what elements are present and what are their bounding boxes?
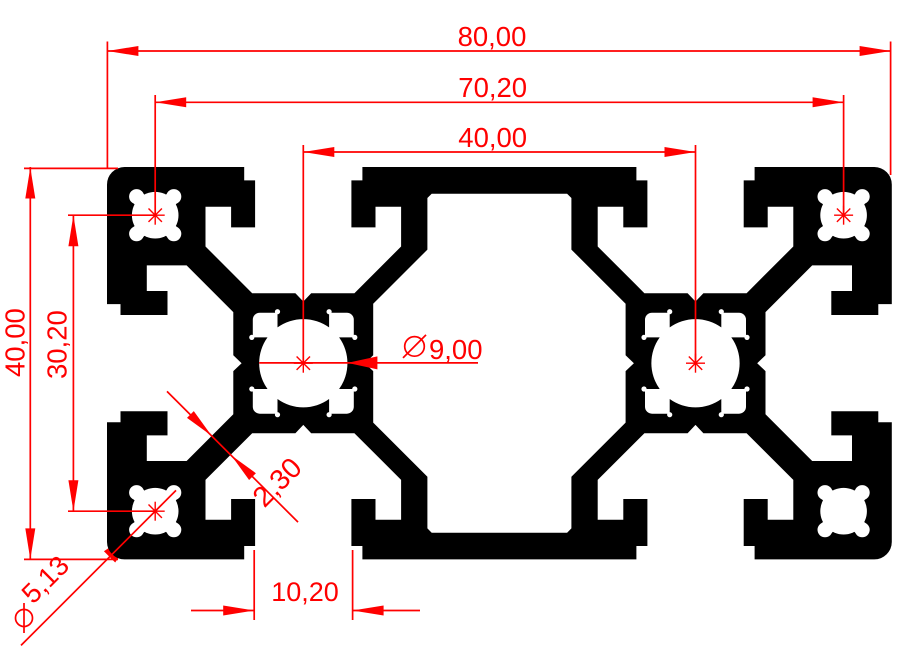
svg-text:40,00: 40,00 xyxy=(0,308,31,377)
svg-text:30,20: 30,20 xyxy=(42,310,73,379)
svg-text:9,00: 9,00 xyxy=(429,334,483,365)
svg-text:70,20: 70,20 xyxy=(458,72,527,103)
svg-text:80,00: 80,00 xyxy=(458,21,527,52)
svg-text:40,00: 40,00 xyxy=(458,122,527,153)
svg-text:10,20: 10,20 xyxy=(271,577,339,607)
